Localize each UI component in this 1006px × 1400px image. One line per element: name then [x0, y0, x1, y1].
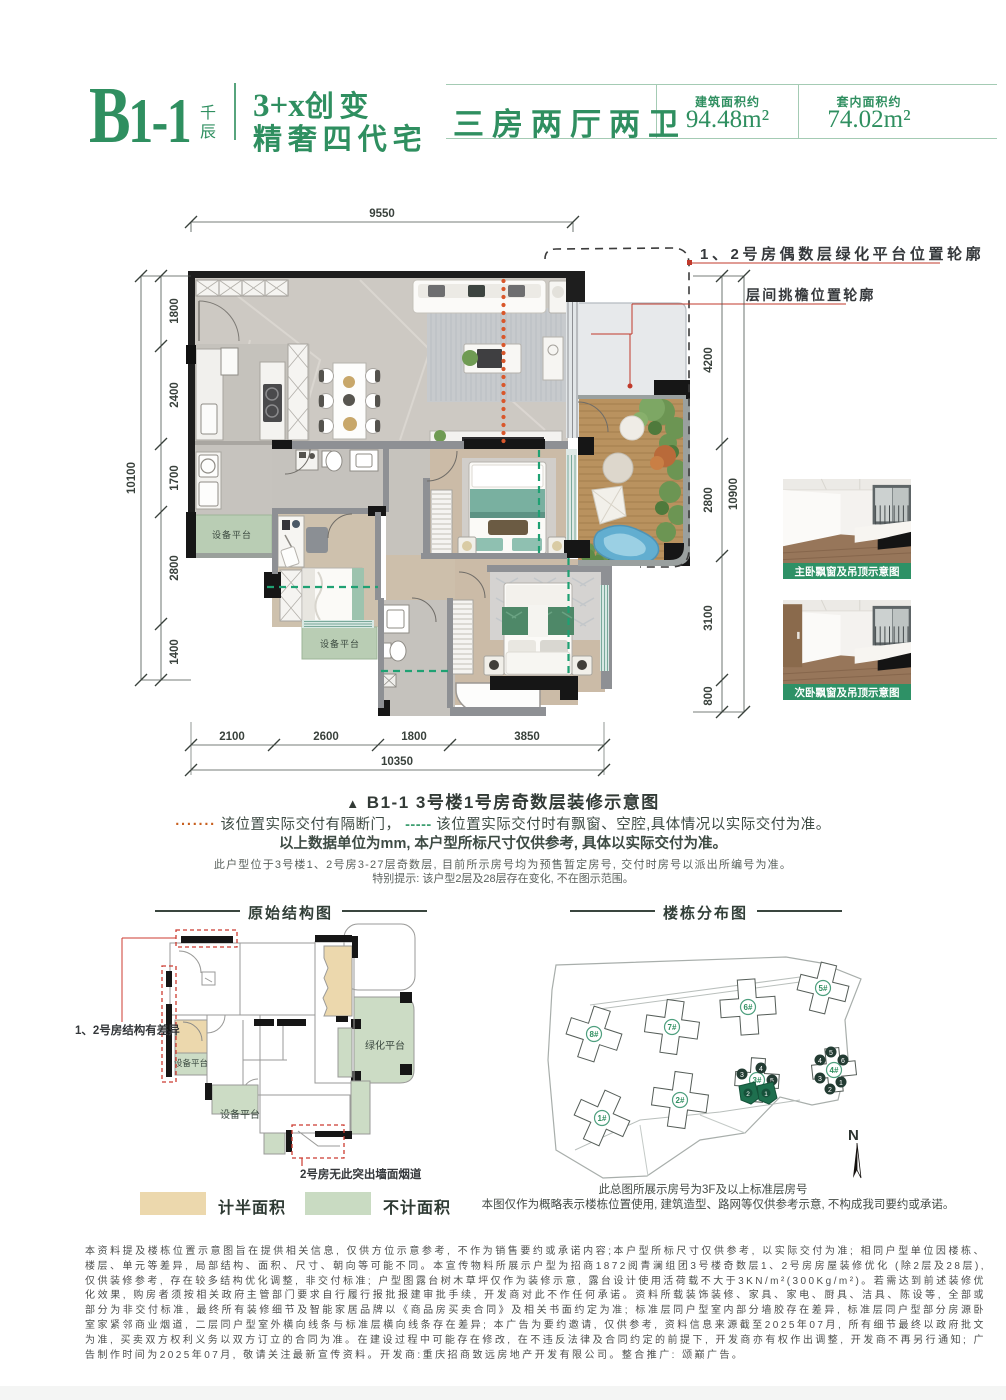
svg-text:1400: 1400: [169, 639, 181, 665]
svg-text:6#: 6#: [744, 1003, 753, 1012]
svg-text:1: 1: [764, 1091, 768, 1098]
svg-text:5#: 5#: [819, 984, 828, 993]
svg-text:2: 2: [828, 1087, 832, 1094]
svg-text:2: 2: [746, 1091, 750, 1098]
svg-text:2800: 2800: [169, 555, 181, 581]
svg-text:1、2号房偶数层绿化平台位置轮廓: 1、2号房偶数层绿化平台位置轮廓: [700, 245, 984, 263]
svg-text:9550: 9550: [369, 208, 395, 220]
svg-text:2800: 2800: [703, 487, 715, 513]
svg-text:8#: 8#: [590, 1030, 599, 1039]
svg-text:N: N: [848, 1127, 859, 1144]
svg-text:2600: 2600: [313, 731, 339, 743]
svg-text:绿化平台: 绿化平台: [365, 1039, 405, 1052]
svg-text:7#: 7#: [668, 1023, 677, 1032]
svg-text:2#: 2#: [676, 1096, 685, 1105]
svg-text:800: 800: [703, 686, 715, 705]
svg-text:1700: 1700: [169, 465, 181, 491]
svg-text:5: 5: [829, 1050, 833, 1057]
svg-text:3: 3: [740, 1072, 744, 1079]
svg-text:3850: 3850: [514, 731, 540, 743]
svg-text:次卧飘窗及吊顶示意图: 次卧飘窗及吊顶示意图: [795, 686, 900, 699]
svg-text:10100: 10100: [126, 462, 138, 494]
svg-text:2400: 2400: [169, 382, 181, 408]
svg-text:1: 1: [839, 1080, 843, 1087]
svg-text:1#: 1#: [598, 1114, 607, 1123]
svg-text:6: 6: [841, 1058, 845, 1065]
svg-text:4: 4: [759, 1066, 763, 1073]
svg-text:主卧飘窗及吊顶示意图: 主卧飘窗及吊顶示意图: [795, 565, 900, 578]
svg-text:设备平台: 设备平台: [212, 529, 252, 540]
svg-text:4: 4: [818, 1058, 822, 1065]
svg-text:10350: 10350: [381, 756, 413, 768]
svg-text:3: 3: [818, 1076, 822, 1083]
svg-text:10900: 10900: [728, 478, 740, 510]
svg-text:4#: 4#: [830, 1066, 839, 1075]
svg-text:设备平台: 设备平台: [220, 1108, 260, 1121]
svg-text:2100: 2100: [219, 731, 245, 743]
svg-text:1800: 1800: [169, 298, 181, 324]
svg-text:层间挑檐位置轮廓: 层间挑檐位置轮廓: [746, 287, 876, 303]
svg-text:设备平台: 设备平台: [174, 1058, 208, 1068]
svg-text:1、2号房结构有差异: 1、2号房结构有差异: [75, 1023, 180, 1037]
svg-text:3100: 3100: [703, 605, 715, 631]
svg-text:2号房无此突出墙面烟道: 2号房无此突出墙面烟道: [300, 1167, 422, 1181]
svg-text:设备平台: 设备平台: [320, 638, 360, 649]
svg-text:1800: 1800: [401, 731, 427, 743]
svg-text:4200: 4200: [703, 347, 715, 373]
